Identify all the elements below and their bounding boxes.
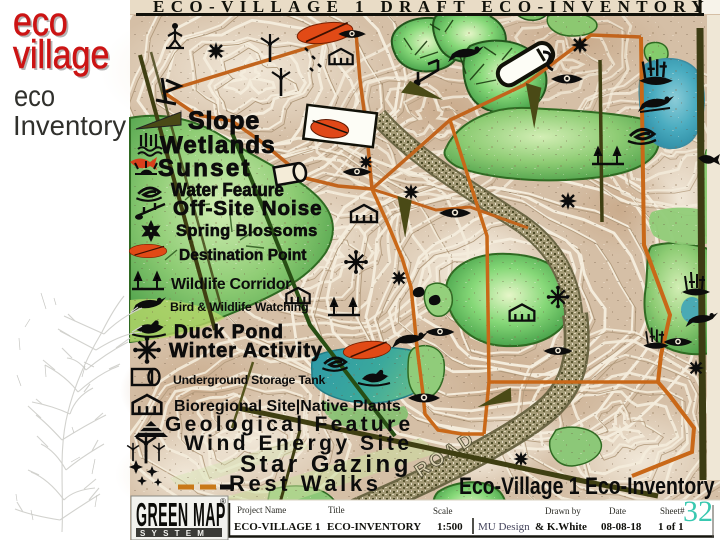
svg-text:eco: eco [14,79,55,112]
svg-text:village: village [13,31,109,76]
svg-text:Inventory: Inventory [13,110,126,141]
